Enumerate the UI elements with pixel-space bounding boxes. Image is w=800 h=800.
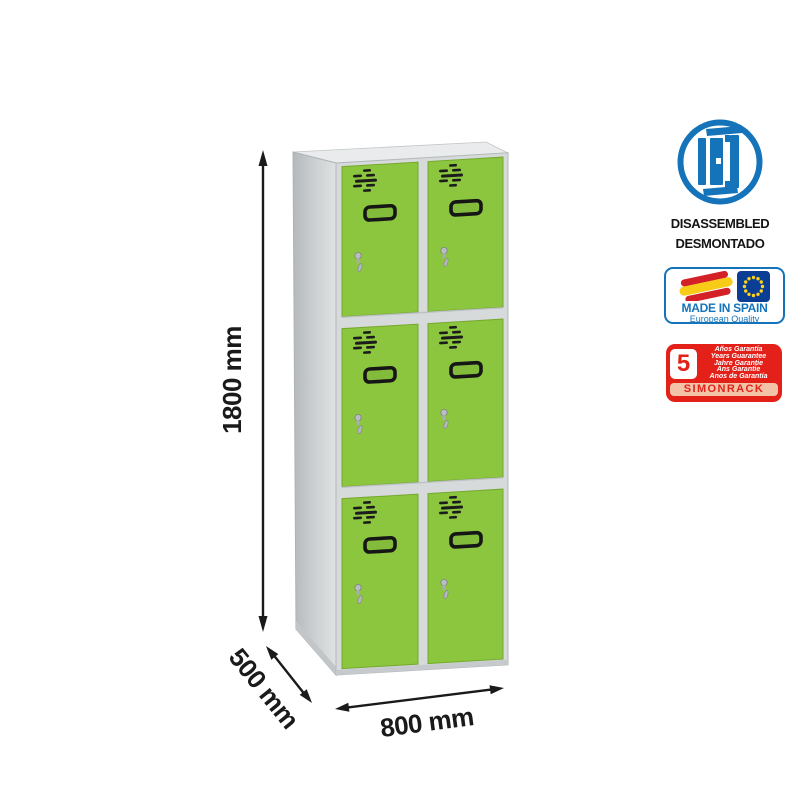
- guarantee-line: Anos de Garantía: [699, 374, 778, 381]
- locker-door-r1c2: [428, 157, 503, 311]
- guarantee-brand: SIMONRACK: [670, 383, 778, 396]
- height-dimension-label: 1800 mm: [217, 326, 247, 434]
- disassembled-badge: DISASSEMBLED DESMONTADO: [632, 118, 800, 254]
- locker-door-r1c1: [342, 162, 418, 317]
- made-in-spain-badge: MADE IN SPAIN European Quality: [664, 267, 785, 324]
- locker-door-r3c2: [428, 489, 503, 663]
- guarantee-years-number: 5: [670, 349, 697, 379]
- locker-side-panel: [293, 152, 336, 675]
- depth-dimension-label: 500 mm: [223, 642, 305, 734]
- height-dimension-arrow: [259, 150, 268, 632]
- disassembled-label-en: DISASSEMBLED: [671, 214, 770, 234]
- eu-flag-icon: [737, 271, 770, 302]
- width-dimension-label: 800 mm: [378, 701, 475, 743]
- disassembled-label-es: DESMONTADO: [671, 234, 770, 254]
- made-in-spain-subtitle: European Quality: [690, 315, 760, 324]
- flat-pack-panels-icon: [676, 118, 764, 206]
- locker-front: [336, 153, 508, 675]
- locker-door-r3c1: [342, 494, 418, 669]
- spain-flag-icon: [679, 271, 733, 301]
- guarantee-badge: 5 Años Garantía Years Guarantee Jahre Ga…: [666, 344, 782, 402]
